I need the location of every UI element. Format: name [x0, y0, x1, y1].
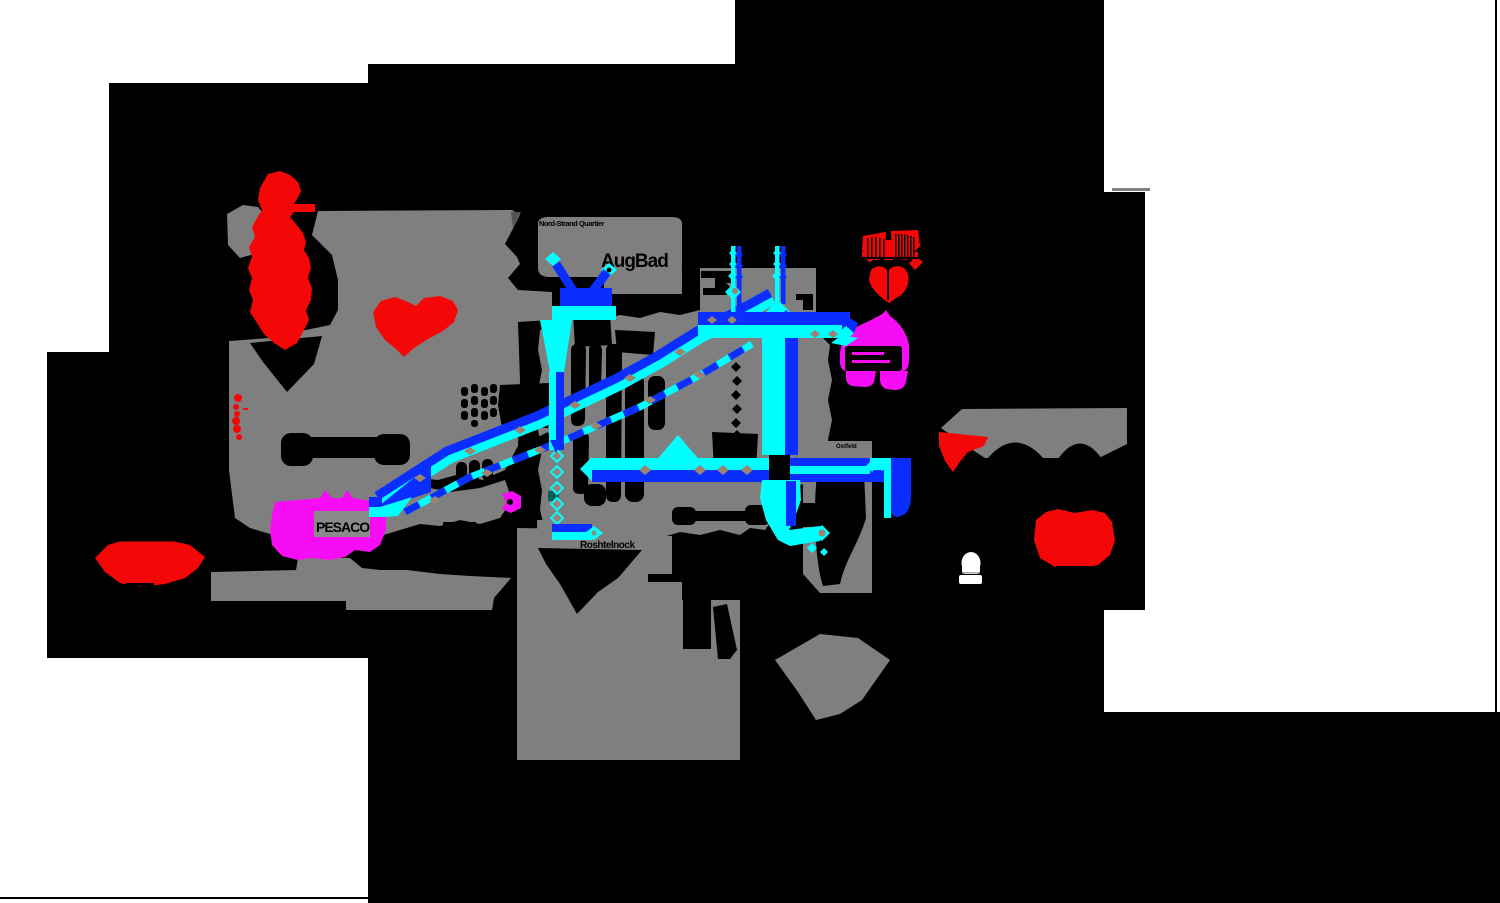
svg-text:PESACO: PESACO — [316, 519, 370, 535]
svg-text:altstadt: altstadt — [702, 270, 719, 275]
svg-text:Ostfeld: Ostfeld — [836, 444, 857, 450]
svg-text:Nord-Strand Quartier: Nord-Strand Quartier — [539, 219, 605, 228]
svg-text:am Rothel: am Rothel — [582, 550, 607, 556]
